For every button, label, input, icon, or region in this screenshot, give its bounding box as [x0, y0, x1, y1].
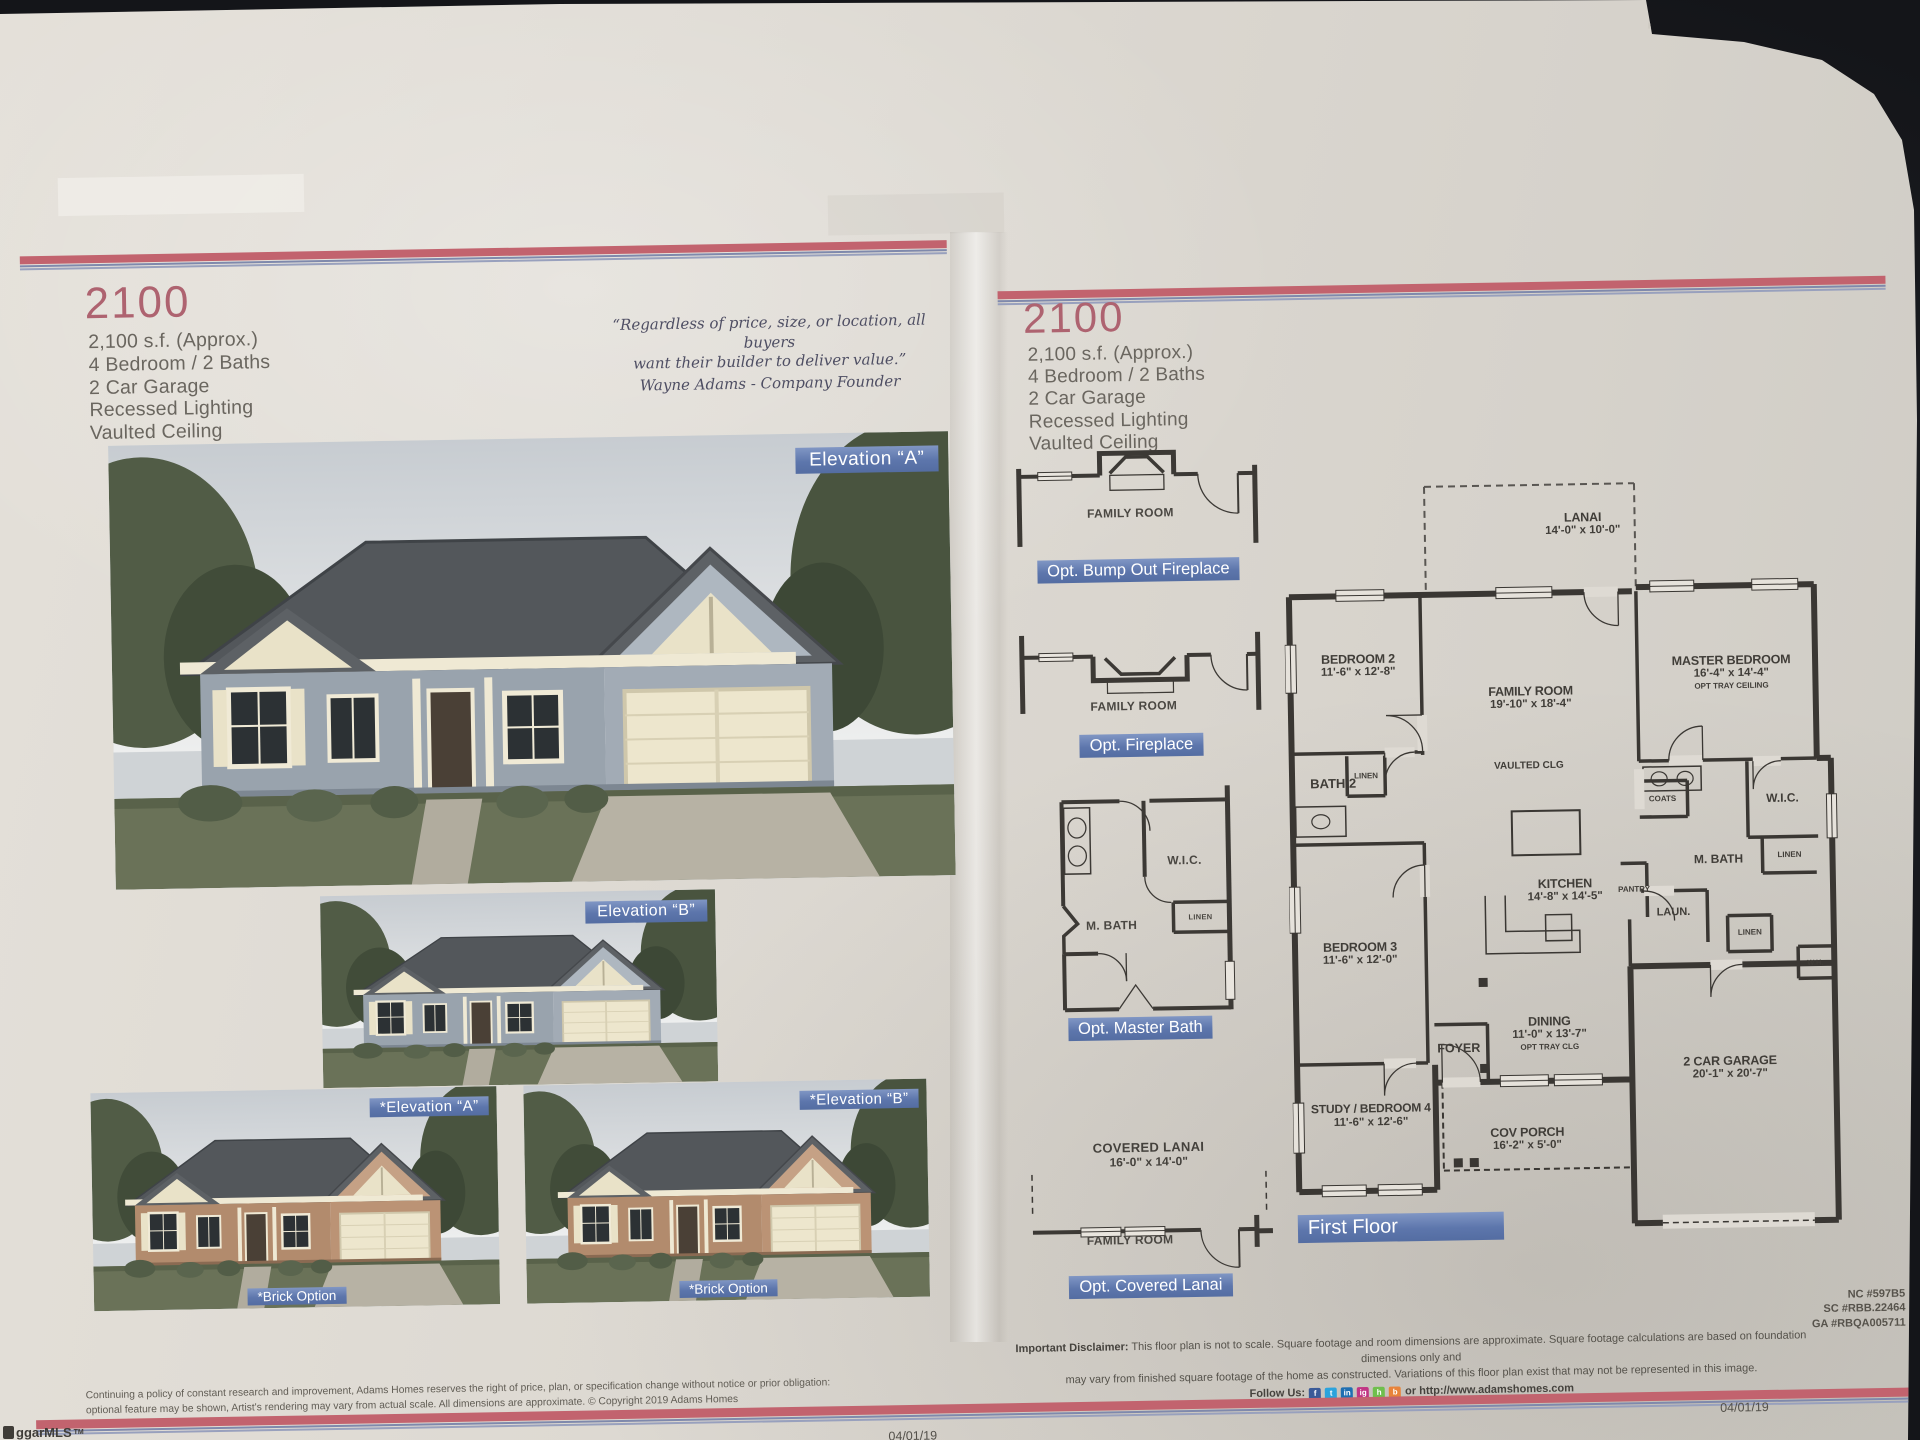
- room-label-water-heater: W.H.: [1807, 959, 1823, 968]
- master-bath-diagram: [1031, 783, 1245, 1017]
- disclaimer-label: Important Disclaimer:: [1015, 1341, 1128, 1355]
- spec-list-left: 2,100 s.f. (Approx.) 4 Bedroom / 2 Baths…: [88, 328, 272, 445]
- room-label-linen-bath2: LINEN: [1354, 771, 1378, 781]
- house-rendering: [90, 1086, 500, 1311]
- fireplace-diagram: [1014, 626, 1266, 734]
- floor-plan: LANAI 14'-0" x 10'-0" BEDROOM 2 11'-6" x…: [1282, 457, 1916, 1258]
- elevation-b-figure: Elevation “B”: [320, 889, 718, 1088]
- room-label-pantry: PANTRY: [1618, 884, 1650, 894]
- room-label-family-room: FAMILY ROOM 19'-10" x 18'-4": [1488, 684, 1573, 713]
- room-label-bath2: BATH 2: [1310, 777, 1356, 793]
- option-banner: Opt. Covered Lanai: [1069, 1273, 1232, 1299]
- room-label-linen-hall: LINEN: [1738, 927, 1762, 937]
- option-banner: Opt. Fireplace: [1079, 733, 1203, 758]
- option-mbath-label: M. BATH: [1086, 918, 1137, 933]
- spec-line: Recessed Lighting: [89, 396, 271, 422]
- covered-lanai-diagram: [1024, 1171, 1276, 1275]
- bump-out-fireplace-diagram: [1011, 443, 1263, 559]
- room-label-coats: COATS: [1649, 794, 1677, 804]
- brick-elevation-b-figure: *Elevation “B” *Brick Option: [523, 1079, 930, 1304]
- room-label-mbath: M. BATH: [1694, 852, 1743, 867]
- option-banner: Opt. Master Bath: [1068, 1016, 1213, 1042]
- model-title-right: 2100: [1023, 293, 1125, 343]
- brick-elevation-b-banner: *Elevation “B”: [800, 1089, 919, 1110]
- spec-line: 2 Car Garage: [89, 374, 271, 400]
- spec-line: Recessed Lighting: [1029, 408, 1206, 433]
- room-label-bedroom3: BEDROOM 3 11'-6" x 12'-0": [1323, 940, 1398, 969]
- option-banner: Opt. Bump Out Fireplace: [1037, 557, 1240, 584]
- room-label-cov-porch: COV PORCH 16'-2" x 5'-0": [1490, 1125, 1564, 1154]
- founder-quote: “Regardless of price, size, or location,…: [611, 311, 928, 397]
- room-label-garage: 2 CAR GARAGE 20'-1" x 20'-7": [1683, 1053, 1777, 1082]
- covered-lanai-dims: 16'-0" x 14'-0": [1024, 1153, 1274, 1171]
- spec-line: 2,100 s.f. (Approx.): [1027, 342, 1204, 367]
- spec-list-right: 2,100 s.f. (Approx.) 4 Bedroom / 2 Baths…: [1027, 342, 1206, 456]
- quote-attribution: Wayne Adams - Company Founder: [612, 371, 928, 396]
- elevation-a-figure: Elevation “A”: [108, 431, 956, 890]
- first-floor-banner: First Floor: [1298, 1212, 1504, 1244]
- brick-option-banner: *Brick Option: [247, 1287, 346, 1306]
- room-label-foyer: FOYER: [1437, 1041, 1480, 1056]
- photo-canvas: 2100 2,100 s.f. (Approx.) 4 Bedroom / 2 …: [0, 0, 1920, 1440]
- floor-plan-drawing: [1282, 457, 1916, 1258]
- spec-line: 4 Bedroom / 2 Baths: [88, 351, 270, 377]
- spec-line: 4 Bedroom / 2 Baths: [1028, 364, 1205, 389]
- model-title-left: 2100: [84, 277, 191, 329]
- top-rule-right: [998, 276, 1886, 305]
- room-label-wic: W.I.C.: [1766, 791, 1799, 805]
- room-label-linen-mbath: LINEN: [1777, 850, 1801, 860]
- brochure-paper: 2100 2,100 s.f. (Approx.) 4 Bedroom / 2 …: [0, 0, 1920, 1440]
- room-label-bedroom2: BEDROOM 2 11'-6" x 12'-8": [1321, 652, 1396, 681]
- room-label-dining: DINING 11'-0" x 13'-7" OPT TRAY CLG: [1512, 1014, 1587, 1052]
- option-fireplace: FAMILY ROOM Opt. Fireplace: [1014, 626, 1266, 759]
- brick-elevation-a-banner: *Elevation “A”: [370, 1096, 489, 1117]
- brick-elevation-a-figure: *Elevation “A” *Brick Option: [90, 1086, 500, 1311]
- quote-line: want their builder to deliver value.”: [612, 350, 928, 375]
- mls-logo-icon: [3, 1426, 14, 1439]
- quote-line: “Regardless of price, size, or location,…: [611, 311, 928, 356]
- elevation-b-banner: Elevation “B”: [585, 899, 707, 923]
- spec-line: Vaulted Ceiling: [90, 419, 272, 445]
- house-rendering: [523, 1079, 930, 1304]
- room-label-laundry: LAUN.: [1657, 906, 1691, 919]
- option-bump-out-fireplace: FAMILY ROOM Opt. Bump Out Fireplace: [1011, 443, 1263, 584]
- mls-watermark: ggarMLS TM: [3, 1425, 84, 1440]
- option-room-label: FAMILY ROOM: [1090, 698, 1177, 714]
- room-label-study: STUDY / BEDROOM 4 11'-6" x 12'-6": [1311, 1101, 1431, 1130]
- house-rendering: [108, 431, 956, 890]
- spec-line: 2,100 s.f. (Approx.): [88, 328, 270, 354]
- date-stamp-right: 04/01/19: [1720, 1400, 1769, 1415]
- room-label-kitchen: KITCHEN 14'-8" x 14'-5": [1527, 876, 1603, 905]
- brick-option-banner: *Brick Option: [679, 1279, 778, 1298]
- printed-content: 2100 2,100 s.f. (Approx.) 4 Bedroom / 2 …: [0, 0, 1920, 1440]
- option-room-label: FAMILY ROOM: [1087, 505, 1174, 521]
- room-label-vaulted-clg: VAULTED CLG: [1494, 760, 1564, 773]
- room-label-lanai: LANAI 14'-0" x 10'-0": [1545, 510, 1621, 539]
- disclaimer-line1: This floor plan is not to scale. Square …: [1128, 1329, 1806, 1365]
- elevation-a-banner: Elevation “A”: [795, 445, 939, 473]
- option-master-bath: W.I.C. M. BATH LINEN Opt. Master Bath: [1031, 783, 1245, 1042]
- registration-numbers: NC #597B5 SC #RBB.22464 GA #RBQA005711: [1750, 1287, 1906, 1333]
- top-rule-left: [20, 240, 947, 270]
- option-room-label: FAMILY ROOM: [1087, 1232, 1174, 1248]
- option-linen-label: LINEN: [1188, 912, 1212, 921]
- option-wic-label: W.I.C.: [1167, 853, 1202, 868]
- date-stamp-left: 04/01/19: [888, 1429, 937, 1440]
- spec-line: 2 Car Garage: [1028, 386, 1205, 411]
- option-covered-lanai: COVERED LANAI 16'-0" x 14'-0": [1023, 1138, 1276, 1300]
- room-label-master-bedroom: MASTER BEDROOM 16'-4" x 14'-4" OPT TRAY …: [1672, 652, 1791, 691]
